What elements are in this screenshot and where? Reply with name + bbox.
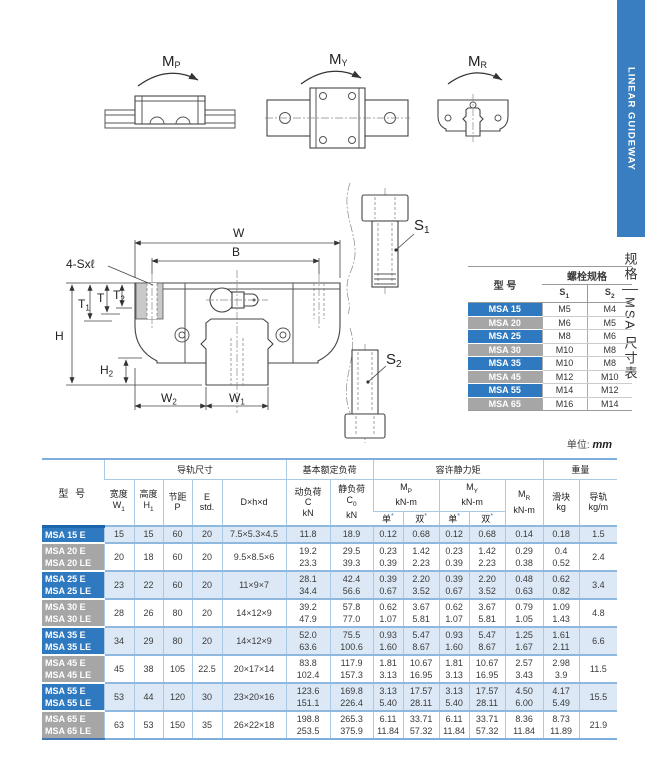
spec-row-model: MSA 65 EMSA 65 LE (42, 711, 104, 739)
bolt-s2: S2 (345, 344, 402, 443)
unit-note: 单位: mm (567, 436, 612, 451)
spec-cell-p: 60 (163, 571, 192, 599)
spec-cell-dhd: 26×22×18 (222, 711, 286, 739)
header-weight-group: 重量 (543, 459, 617, 479)
spec-cell-h1: 22 (134, 571, 163, 599)
spec-cell-c: 28.134.4 (286, 571, 330, 599)
spec-row-model: MSA 35 EMSA 35 LE (42, 627, 104, 655)
bolt-row-model: MSA 25 (468, 330, 542, 344)
spec-cell-my_single: 6.1111.84 (439, 711, 469, 739)
spec-cell-c0: 169.8226.4 (330, 683, 373, 711)
spec-row-model: MSA 25 EMSA 25 LE (42, 571, 104, 599)
spec-cell-w1: 20 (104, 543, 134, 571)
main-table-body: MSA 15 E151560207.5×5.3×4.511.818.90.120… (42, 526, 617, 739)
header-height: 高度H1 (134, 479, 163, 526)
banner-text: LINEAR GUIDEWAY (626, 67, 637, 171)
spec-cell-c0: 265.3375.9 (330, 711, 373, 739)
spec-cell-rail_kgm: 11.5 (579, 655, 617, 683)
spec-cell-mr: 0.480.63 (505, 571, 543, 599)
bolt-row: MSA 30M10M8 (468, 343, 632, 357)
spec-row: MSA 30 EMSA 30 LE2826802014×12×939.247.9… (42, 599, 617, 627)
spec-cell-my_double: 0.68 (469, 526, 505, 543)
spec-cell-dhd: 14×12×9 (222, 627, 286, 655)
unit-note-label: 单位: (567, 440, 590, 451)
bolt-row: MSA 35M10M8 (468, 357, 632, 371)
spec-cell-h1: 53 (134, 711, 163, 739)
spec-cell-c: 198.8253.5 (286, 711, 330, 739)
bolt-row-s1: M6 (542, 316, 587, 330)
spec-cell-mp_double: 3.675.81 (403, 599, 439, 627)
spec-cell-my_single: 0.12 (439, 526, 469, 543)
spec-cell-mp_single: 0.230.39 (373, 543, 403, 571)
spec-cell-slider_kg: 2.983.9 (543, 655, 579, 683)
bolt-row-s1: M12 (542, 370, 587, 384)
spec-cell-slider_kg: 0.620.82 (543, 571, 579, 599)
header-width: 宽度W1 (104, 479, 134, 526)
spec-cell-rail_kgm: 15.5 (579, 683, 617, 711)
spec-cell-c0: 117.9157.3 (330, 655, 373, 683)
bolt-row-s1: M10 (542, 343, 587, 357)
dim-t2-label: T2 (113, 288, 125, 304)
dim-h2-label: H2 (100, 363, 114, 379)
spec-cell-w1: 15 (104, 526, 134, 543)
bolt-row-s2: M5 (587, 316, 632, 330)
spec-cell-mp_single: 1.813.13 (373, 655, 403, 683)
spec-cell-mp_double: 2.203.52 (403, 571, 439, 599)
dim-w2-label: W2 (161, 391, 177, 407)
header-mp-single: 单* (373, 511, 403, 526)
spec-row-model: MSA 30 EMSA 30 LE (42, 599, 104, 627)
dim-h-label: H (55, 329, 64, 343)
bolt-row-s2: M6 (587, 330, 632, 344)
bolt-row: MSA 45M12M10 (468, 370, 632, 384)
header-dhd: D×h×d (222, 479, 286, 526)
spec-cell-rail_kgm: 21.9 (579, 711, 617, 739)
spec-cell-slider_kg: 1.091.43 (543, 599, 579, 627)
spec-cell-c0: 75.5100.6 (330, 627, 373, 655)
spec-cell-p: 150 (163, 711, 192, 739)
spec-cell-h1: 29 (134, 627, 163, 655)
break-line-top (347, 183, 355, 314)
spec-cell-e: 35 (192, 711, 222, 739)
spec-cell-mp_single: 0.12 (373, 526, 403, 543)
bolt-table-group-header: 螺栓规格 (542, 267, 632, 285)
bolt-s1-label: S1 (414, 217, 430, 236)
spec-cell-my_single: 0.390.67 (439, 571, 469, 599)
spec-cell-dhd: 9.5×8.5×6 (222, 543, 286, 571)
spec-cell-my_double: 33.7157.32 (469, 711, 505, 739)
header-rail-dims-group: 导轨尺寸 (104, 459, 286, 479)
header-e: Estd. (192, 479, 222, 526)
spec-cell-slider_kg: 0.18 (543, 526, 579, 543)
spec-cell-p: 80 (163, 599, 192, 627)
spec-cell-mr: 0.290.38 (505, 543, 543, 571)
spec-cell-mr: 2.573.43 (505, 655, 543, 683)
bolt-row-model: MSA 30 (468, 343, 542, 357)
spec-cell-c0: 29.539.3 (330, 543, 373, 571)
spec-row: MSA 20 EMSA 20 LE201860209.5×8.5×619.223… (42, 543, 617, 571)
spec-cell-h1: 26 (134, 599, 163, 627)
mp-label: MP (162, 53, 181, 70)
spec-cell-mr: 0.791.05 (505, 599, 543, 627)
cross-section-drawing: W B 4-Sxℓ H T1 T T2 H2 W2 (50, 178, 480, 440)
spec-cell-p: 105 (163, 655, 192, 683)
spec-row-model: MSA 15 E (42, 526, 104, 543)
spec-cell-mp_single: 6.1111.84 (373, 711, 403, 739)
spec-cell-my_single: 0.931.60 (439, 627, 469, 655)
header-mr: MRkN-m (505, 479, 543, 526)
spec-cell-c0: 18.9 (330, 526, 373, 543)
spec-cell-mr: 4.506.00 (505, 683, 543, 711)
spec-cell-c: 39.247.9 (286, 599, 330, 627)
spec-cell-dhd: 7.5×5.3×4.5 (222, 526, 286, 543)
header-dynamic-load: 动负荷CkN (286, 479, 330, 526)
spec-row: MSA 35 EMSA 35 LE3429802014×12×952.063.6… (42, 627, 617, 655)
spec-cell-mp_single: 0.621.07 (373, 599, 403, 627)
spec-cell-mp_double: 1.422.23 (403, 543, 439, 571)
bolt-row-s2: M12 (587, 384, 632, 398)
spec-cell-e: 22.5 (192, 655, 222, 683)
spec-row: MSA 65 EMSA 65 LE63531503526×22×18198.82… (42, 711, 617, 739)
dim-w-label: W (233, 226, 245, 240)
header-static-moment-group: 容许静力矩 (373, 459, 543, 479)
spec-cell-rail_kgm: 2.4 (579, 543, 617, 571)
header-rail-weight: 导轨kg/m (579, 479, 617, 526)
spec-cell-slider_kg: 0.40.52 (543, 543, 579, 571)
header-slider-weight: 滑块kg (543, 479, 579, 526)
spec-cell-w1: 63 (104, 711, 134, 739)
spec-cell-my_single: 3.135.40 (439, 683, 469, 711)
spec-row-model: MSA 55 EMSA 55 LE (42, 683, 104, 711)
bolt-table-s2-header: S2 (587, 285, 632, 303)
spec-row: MSA 45 EMSA 45 LE453810522.520×17×1483.8… (42, 655, 617, 683)
spec-cell-p: 120 (163, 683, 192, 711)
header-my: MYkN-m (439, 479, 505, 511)
spec-row-model: MSA 45 EMSA 45 LE (42, 655, 104, 683)
spec-cell-my_single: 0.230.39 (439, 543, 469, 571)
spec-cell-dhd: 20×17×14 (222, 655, 286, 683)
bolt-table-s1-header: S1 (542, 285, 587, 303)
bolt-row-s1: M10 (542, 357, 587, 371)
header-rated-load-group: 基本额定负荷 (286, 459, 373, 479)
spec-cell-h1: 38 (134, 655, 163, 683)
catalog-page: LINEAR GUIDEWAY 规格 MSA 尺寸表 MP MY (0, 0, 645, 775)
spec-cell-e: 20 (192, 571, 222, 599)
spec-cell-mr: 1.251.67 (505, 627, 543, 655)
spec-cell-my_single: 0.621.07 (439, 599, 469, 627)
spec-cell-my_double: 2.203.52 (469, 571, 505, 599)
spec-cell-slider_kg: 4.175.49 (543, 683, 579, 711)
header-my-double: 双* (469, 511, 505, 526)
bolt-row: MSA 20M6M5 (468, 316, 632, 330)
bolt-row: MSA 15M5M4 (468, 303, 632, 317)
mp-arc-arrow (138, 73, 198, 86)
spec-cell-c: 123.6151.1 (286, 683, 330, 711)
moment-diagram-my: MY (265, 48, 410, 148)
dim-t-label: T (97, 291, 105, 305)
header-my-single: 单* (439, 511, 469, 526)
spec-cell-mp_single: 0.390.67 (373, 571, 403, 599)
bolt-row-model: MSA 20 (468, 316, 542, 330)
header-mp: MPkN-m (373, 479, 439, 511)
dim-t1-label: T1 (78, 297, 90, 313)
spec-cell-mr: 0.14 (505, 526, 543, 543)
spec-cell-e: 20 (192, 543, 222, 571)
bolt-row-s1: M16 (542, 397, 587, 411)
header-mp-double: 双* (403, 511, 439, 526)
spec-cell-p: 60 (163, 543, 192, 571)
header-model: 型 号 (42, 459, 104, 526)
my-arc-arrow (301, 71, 361, 84)
bolt-row-model: MSA 15 (468, 303, 542, 317)
moment-diagram-mp: MP (100, 50, 240, 145)
bolt-row-s2: M10 (587, 370, 632, 384)
spec-cell-c0: 57.877.0 (330, 599, 373, 627)
spec-cell-w1: 28 (104, 599, 134, 627)
spec-cell-slider_kg: 8.7311.89 (543, 711, 579, 739)
bolt-row-s1: M14 (542, 384, 587, 398)
bolt-row-model: MSA 55 (468, 384, 542, 398)
bolt-row-model: MSA 45 (468, 370, 542, 384)
spec-row: MSA 15 E151560207.5×5.3×4.511.818.90.120… (42, 526, 617, 543)
spec-cell-my_double: 10.6716.95 (469, 655, 505, 683)
spec-cell-w1: 53 (104, 683, 134, 711)
spec-cell-rail_kgm: 1.5 (579, 526, 617, 543)
main-dimension-table: 型 号 导轨尺寸 基本额定负荷 容许静力矩 重量 宽度W1 高度H1 节距P E… (42, 458, 617, 740)
bolt-row-model: MSA 35 (468, 357, 542, 371)
spec-cell-mp_single: 0.931.60 (373, 627, 403, 655)
spec-row: MSA 25 EMSA 25 LE2322602011×9×728.134.44… (42, 571, 617, 599)
spec-cell-c: 52.063.6 (286, 627, 330, 655)
dim-w1-label: W1 (229, 391, 245, 407)
bolt-row-s1: M5 (542, 303, 587, 317)
bolt-s1: S1 (362, 188, 430, 296)
bolt-row-s2: M8 (587, 357, 632, 371)
header-static-load: 静负荷C0kN (330, 479, 373, 526)
spec-cell-my_single: 1.813.13 (439, 655, 469, 683)
spec-row-model: MSA 20 EMSA 20 LE (42, 543, 104, 571)
bolt-spec-table: 型 号 螺栓规格 S1 S2 MSA 15M5M4MSA 20M6M5MSA 2… (468, 266, 632, 411)
spec-cell-rail_kgm: 4.8 (579, 599, 617, 627)
spec-cell-c: 83.8102.4 (286, 655, 330, 683)
spec-cell-dhd: 11×9×7 (222, 571, 286, 599)
unit-note-value: mm (592, 439, 612, 451)
bolt-row-s2: M14 (587, 397, 632, 411)
spec-cell-slider_kg: 1.612.11 (543, 627, 579, 655)
spec-cell-my_double: 5.478.67 (469, 627, 505, 655)
spec-cell-my_double: 17.5728.11 (469, 683, 505, 711)
spec-cell-w1: 45 (104, 655, 134, 683)
spec-cell-mp_single: 3.135.40 (373, 683, 403, 711)
dim-b-label: B (232, 245, 240, 259)
bolt-row-s2: M4 (587, 303, 632, 317)
spec-cell-p: 80 (163, 627, 192, 655)
spec-cell-w1: 23 (104, 571, 134, 599)
side-banner: LINEAR GUIDEWAY (617, 0, 645, 237)
spec-cell-mp_double: 33.7157.32 (403, 711, 439, 739)
spec-cell-mp_double: 17.5728.11 (403, 683, 439, 711)
spec-cell-mp_double: 0.68 (403, 526, 439, 543)
spec-cell-rail_kgm: 3.4 (579, 571, 617, 599)
bolt-table-model-header: 型 号 (468, 267, 542, 303)
bolt-row: MSA 55M14M12 (468, 384, 632, 398)
mr-arc-arrow (448, 73, 502, 84)
header-pitch: 节距P (163, 479, 192, 526)
spec-cell-dhd: 14×12×9 (222, 599, 286, 627)
spec-cell-e: 30 (192, 683, 222, 711)
spec-cell-mp_double: 5.478.67 (403, 627, 439, 655)
bolt-row-s2: M8 (587, 343, 632, 357)
spec-cell-c: 11.8 (286, 526, 330, 543)
mr-label: MR (468, 53, 488, 70)
spec-cell-p: 60 (163, 526, 192, 543)
spec-cell-my_double: 1.422.23 (469, 543, 505, 571)
my-label: MY (329, 51, 348, 68)
spec-cell-h1: 18 (134, 543, 163, 571)
bolt-row-s1: M8 (542, 330, 587, 344)
spec-cell-e: 20 (192, 627, 222, 655)
spec-cell-mr: 8.3611.84 (505, 711, 543, 739)
spec-cell-rail_kgm: 6.6 (579, 627, 617, 655)
spec-cell-e: 20 (192, 526, 222, 543)
bolt-row: MSA 25M8M6 (468, 330, 632, 344)
bolt-row: MSA 65M16M14 (468, 397, 632, 411)
spec-cell-w1: 34 (104, 627, 134, 655)
bolt-table-body: MSA 15M5M4MSA 20M6M5MSA 25M8M6MSA 30M10M… (468, 303, 632, 411)
spec-cell-e: 20 (192, 599, 222, 627)
spec-cell-dhd: 23×20×16 (222, 683, 286, 711)
moment-diagram-mr: MR (428, 50, 523, 145)
spec-cell-c0: 42.456.6 (330, 571, 373, 599)
spec-cell-mp_double: 10.6716.95 (403, 655, 439, 683)
spec-cell-h1: 44 (134, 683, 163, 711)
bolt-s2-label: S2 (386, 351, 402, 370)
bolt-row-model: MSA 65 (468, 397, 542, 411)
spec-cell-my_double: 3.675.81 (469, 599, 505, 627)
spec-row: MSA 55 EMSA 55 LE53441203023×20×16123.61… (42, 683, 617, 711)
spec-cell-h1: 15 (134, 526, 163, 543)
spec-cell-c: 19.223.3 (286, 543, 330, 571)
screw-spec-label: 4-Sxℓ (66, 257, 95, 271)
